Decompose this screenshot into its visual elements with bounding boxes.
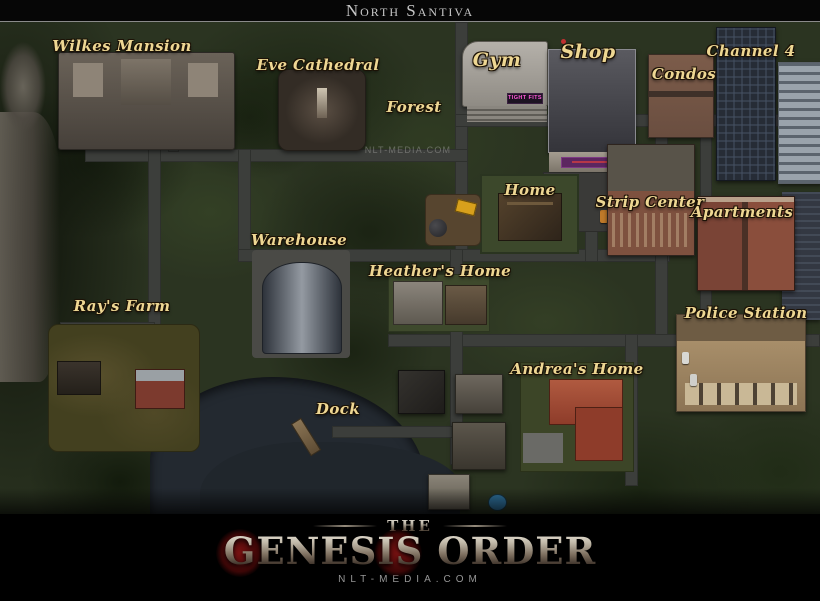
logo-main-text: Genesis Order xyxy=(224,529,596,573)
map-label-warehouse[interactable]: Warehouse xyxy=(251,231,347,249)
gym-storefront-sign: TIGHT FITS xyxy=(507,93,543,104)
warehouse-building xyxy=(262,262,342,354)
heathers-house xyxy=(393,281,443,325)
map-label-eve-cathedral[interactable]: Eve Cathedral xyxy=(257,56,380,74)
shop-building[interactable] xyxy=(548,49,636,153)
map-label-dock[interactable]: Dock xyxy=(316,400,360,418)
warehouse-yard[interactable] xyxy=(252,250,350,358)
neighbor-house xyxy=(445,285,487,325)
swimming-pool xyxy=(488,494,507,511)
house xyxy=(455,374,503,414)
farmhouse xyxy=(57,361,101,395)
map-label-home[interactable]: Home xyxy=(504,181,555,199)
map-label-forest[interactable]: Forest xyxy=(386,98,441,116)
eve-cathedral-building[interactable] xyxy=(278,69,366,151)
andreas-home-lot[interactable] xyxy=(520,362,634,472)
map-label-police-station[interactable]: Police Station xyxy=(685,304,808,322)
red-barn xyxy=(135,369,185,409)
home-house xyxy=(498,193,562,241)
lake-water-south xyxy=(200,442,460,514)
andreas-house-wing xyxy=(575,407,623,461)
game-map-screen: North Santiva TIGHT FITS xyxy=(0,0,820,601)
police-car xyxy=(690,374,697,386)
footer-logo-area: The Genesis Order nlt-media.com xyxy=(0,514,820,601)
house xyxy=(428,474,470,510)
map-watermark: nlt-media.com xyxy=(365,145,451,155)
gym-steps xyxy=(467,106,547,122)
house xyxy=(398,370,445,414)
house xyxy=(452,422,506,470)
road xyxy=(238,149,251,261)
rays-farm-grounds[interactable] xyxy=(48,324,200,452)
website-url: nlt-media.com xyxy=(338,574,482,585)
town-map[interactable]: TIGHT FITS xyxy=(0,22,820,514)
map-label-strip-center[interactable]: Strip Center xyxy=(596,193,705,211)
rock-outcrop xyxy=(0,42,46,132)
road xyxy=(332,426,462,438)
map-label-wilkes-mansion[interactable]: Wilkes Mansion xyxy=(52,37,191,55)
excavator xyxy=(455,199,478,216)
police-car xyxy=(682,352,689,364)
map-label-rays-farm[interactable]: Ray's Farm xyxy=(74,297,171,315)
heathers-home-lot[interactable] xyxy=(388,274,490,332)
map-label-shop[interactable]: Shop xyxy=(560,41,615,63)
construction-site xyxy=(425,194,481,246)
title-bar: North Santiva xyxy=(0,0,820,22)
road xyxy=(148,149,161,351)
map-title: North Santiva xyxy=(346,1,474,21)
map-label-andreas-home[interactable]: Andrea's Home xyxy=(510,360,643,378)
police-station-building[interactable] xyxy=(676,314,806,412)
water-tank xyxy=(429,219,447,237)
office-tower xyxy=(778,62,820,184)
map-label-condos[interactable]: Condos xyxy=(652,65,716,83)
map-label-channel-4[interactable]: Channel 4 xyxy=(707,42,796,60)
game-logo: Genesis Order xyxy=(224,531,596,572)
map-label-apartments[interactable]: Apartments xyxy=(691,203,793,221)
wilkes-mansion-building[interactable] xyxy=(58,52,235,150)
map-label-heathers-home[interactable]: Heather's Home xyxy=(369,262,511,280)
driveway xyxy=(523,433,563,463)
map-label-gym[interactable]: Gym xyxy=(473,49,522,71)
